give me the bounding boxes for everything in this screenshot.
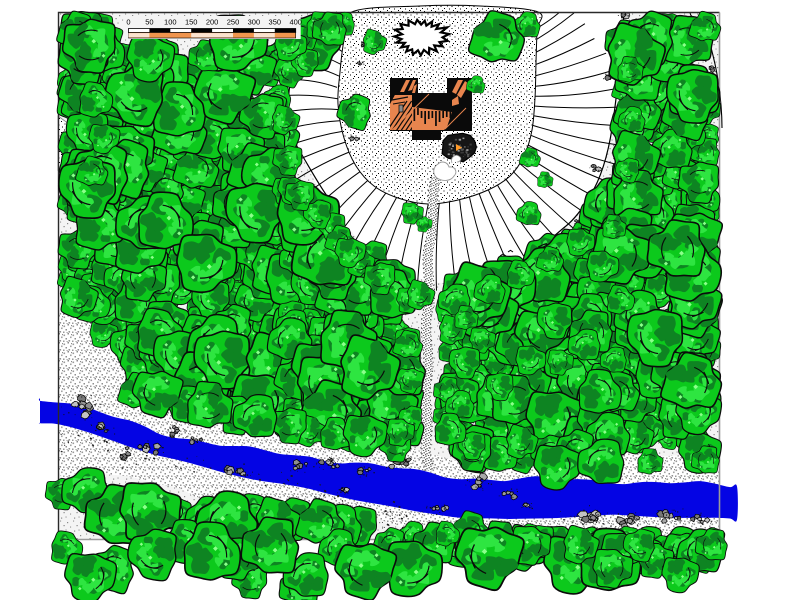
svg-text:50: 50	[145, 18, 153, 27]
svg-text:300: 300	[248, 18, 261, 27]
svg-text:100: 100	[164, 18, 177, 27]
svg-text:350: 350	[269, 18, 282, 27]
svg-text:400: 400	[289, 18, 302, 27]
svg-text:200: 200	[206, 18, 219, 27]
svg-text:250: 250	[227, 18, 240, 27]
svg-text:150: 150	[185, 18, 198, 27]
svg-text:0: 0	[126, 18, 130, 27]
